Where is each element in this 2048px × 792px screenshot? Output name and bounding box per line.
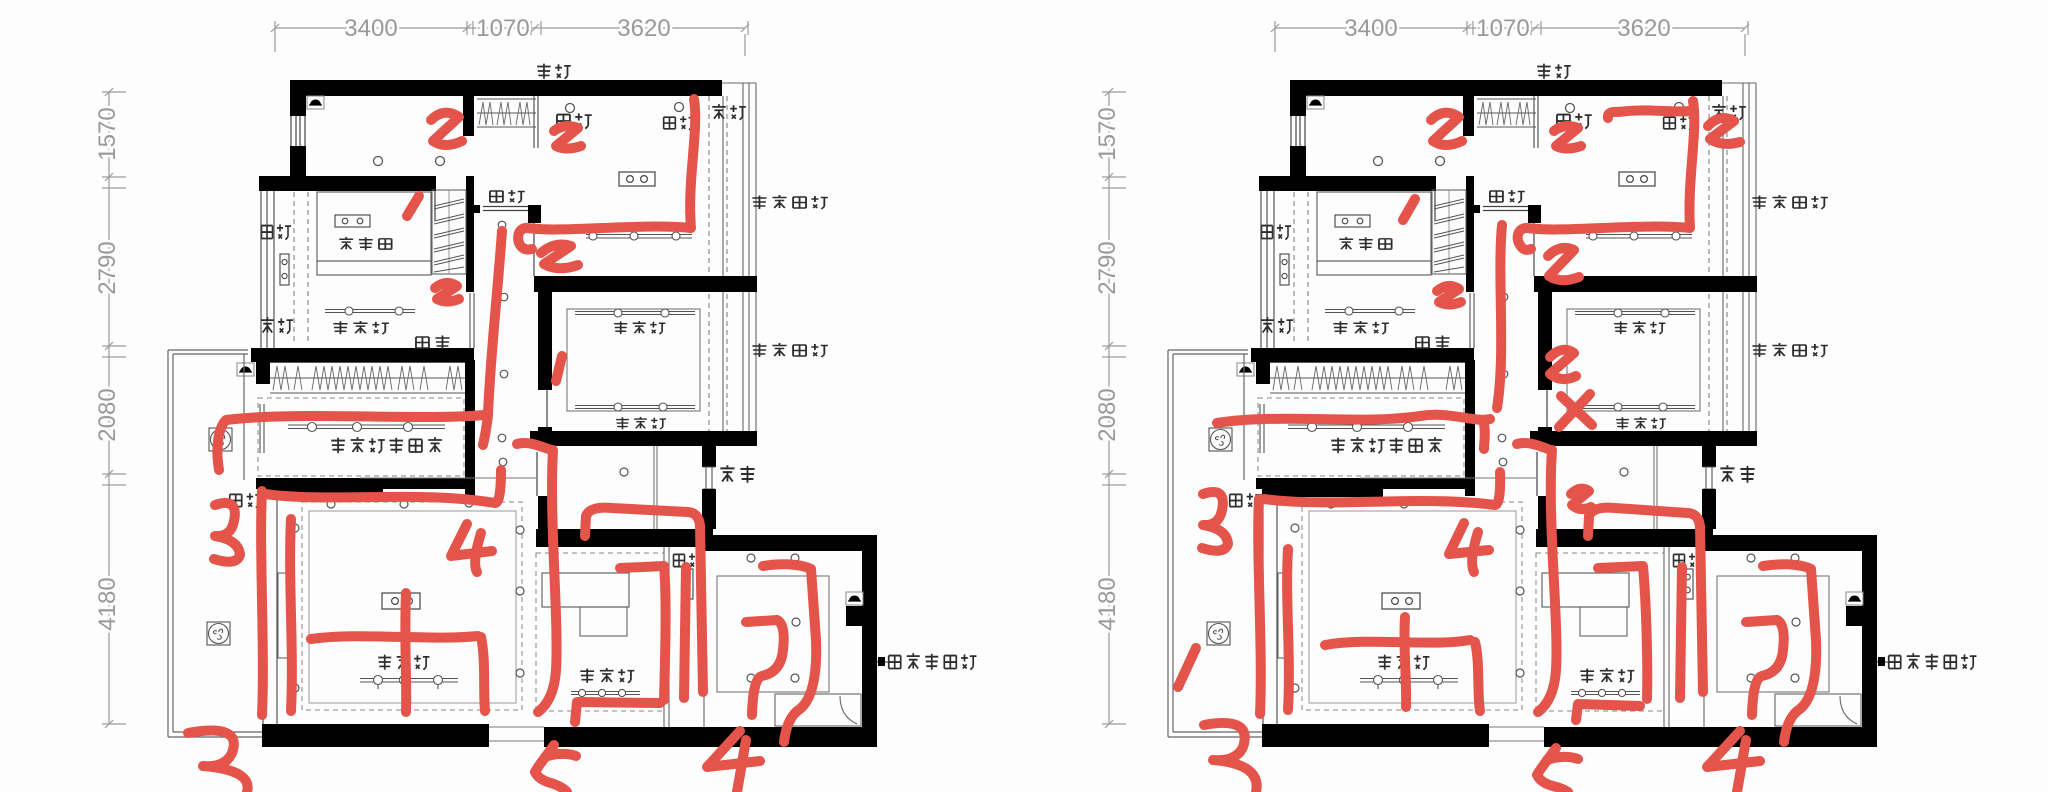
svg-text:4180: 4180 (94, 577, 121, 630)
svg-text:2080: 2080 (94, 388, 121, 441)
svg-text:3620: 3620 (617, 15, 670, 42)
svg-text:1570: 1570 (94, 107, 121, 160)
svg-text:2790: 2790 (94, 241, 121, 294)
svg-text:1070: 1070 (476, 15, 529, 42)
svg-text:3400: 3400 (344, 15, 397, 42)
